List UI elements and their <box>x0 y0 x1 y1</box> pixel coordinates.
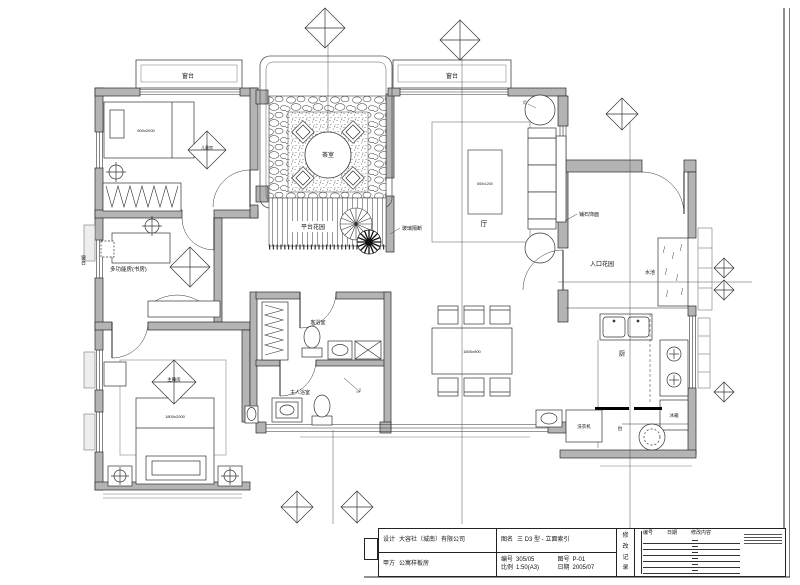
desk <box>112 233 170 263</box>
water-feature: 水池 <box>645 238 688 306</box>
kitchen: 厨 冰箱 洗衣机 台 <box>536 308 692 466</box>
revision-row <box>643 568 740 574</box>
chair <box>101 241 114 257</box>
living-room: 600x1200 厅 灯 <box>432 95 566 263</box>
fridge-label: 冰箱 <box>670 412 679 419</box>
stove <box>660 340 688 396</box>
glass-note-label: 玻璃隔断 <box>402 225 422 232</box>
elevation-marker-master-room: 主睡房 <box>152 360 196 404</box>
title-block-revisions: 编号 日期 修改内容 <box>635 529 785 576</box>
drawing-sheet: 窗台 窗台 窗台 茶室 平台花园 <box>0 0 800 585</box>
drawing-name: 三 D3 型 - 立面索引 <box>517 537 569 544</box>
floor-plan-svg: 窗台 窗台 窗台 茶室 平台花园 <box>0 0 800 585</box>
elevation-marker-icon <box>714 280 734 300</box>
scale-label: 比例 <box>501 565 513 572</box>
chair <box>464 378 484 396</box>
chair <box>490 306 510 324</box>
toilet-icon <box>302 326 322 357</box>
revision-note-block <box>744 532 782 546</box>
designer-value: 大容社（城南）有限公司 <box>399 537 465 544</box>
shrub-icon <box>357 230 381 254</box>
elevation-marker-icon <box>281 491 313 523</box>
revision-header: 日期 <box>667 531 677 537</box>
revision-header: 修改内容 <box>691 531 711 537</box>
elevation-marker-icon <box>714 382 734 402</box>
toilet-icon <box>312 395 332 425</box>
water-pool-label: 水池 <box>645 269 655 276</box>
lamp-label: 灯 <box>523 99 527 105</box>
drawing-name-label: 图名 <box>501 537 513 544</box>
master-bedroom: 1800x2000 <box>104 322 258 486</box>
lamp-icon <box>106 162 126 182</box>
client-label: 甲方 <box>383 561 395 568</box>
paving-note-label: 铺石饰面 <box>579 211 599 218</box>
dining-table-size: 1800x900 <box>463 349 481 354</box>
child-room-label: 儿童房 <box>201 144 213 150</box>
elevation-marker-icon <box>341 491 373 523</box>
cabinet <box>104 362 126 386</box>
side-char: 修 <box>622 533 628 540</box>
elevation-marker-icon <box>606 98 638 130</box>
study-label: 多功能房(书房) <box>110 265 147 273</box>
children-bedroom: 900x2000 <box>103 102 250 211</box>
client-value: 公寓样板房 <box>399 561 429 568</box>
side-table <box>525 95 555 125</box>
side-char: 录 <box>622 565 628 572</box>
job-no: 305/05 <box>516 557 534 564</box>
title-block-tick <box>364 538 378 560</box>
closet <box>262 302 288 360</box>
date-label: 日期 <box>558 565 570 572</box>
side-window-label: 窗台 <box>80 254 86 266</box>
side-table <box>525 233 555 263</box>
washing-machine: 洗衣机 <box>566 410 602 442</box>
double-sink <box>600 314 652 340</box>
guest-bathroom: 客浴室 <box>262 292 381 360</box>
coffee-table-size: 600x1200 <box>477 182 492 186</box>
living-hall-label: 厅 <box>481 220 488 228</box>
deck-label: 平台花园 <box>301 223 325 231</box>
pillow <box>110 110 124 138</box>
chair <box>490 378 510 396</box>
dining-area: 1800x900 <box>432 306 512 396</box>
date-value: 2005/07 <box>573 565 595 572</box>
sheet-no: P-01 <box>573 557 586 564</box>
guest-bath-label: 客浴室 <box>310 319 325 326</box>
small-fixture <box>536 410 562 427</box>
chair <box>464 306 484 324</box>
entry-garden-label: 入口花园 <box>590 260 614 268</box>
elevation-marker-icon <box>305 8 345 48</box>
console-table <box>148 301 220 317</box>
title-block-side-column: 修 改 记 录 <box>617 529 635 576</box>
chair <box>438 378 458 396</box>
washing-machine-label: 洗衣机 <box>577 423 591 430</box>
side-char: 改 <box>622 544 628 551</box>
bay-window-left: 窗台 <box>136 60 242 88</box>
outer-planters <box>698 228 712 388</box>
title-block-drawing-info: 图名 三 D3 型 - 立面索引 编号305/05 比例1:50(A3) 图号P… <box>497 529 617 576</box>
elevation-marker-icon <box>714 258 734 278</box>
job-no-label: 编号 <box>501 557 513 564</box>
elevation-marker-icon <box>440 20 480 60</box>
scale-value: 1:50(A3) <box>516 565 539 572</box>
revision-header: 编号 <box>643 531 653 537</box>
side-char: 记 <box>622 555 628 562</box>
bay-left-label: 窗台 <box>182 72 194 80</box>
single-bed-size: 900x2000 <box>137 128 155 133</box>
counter-label: 台 <box>617 425 622 432</box>
chair <box>438 306 458 324</box>
sheet-no-label: 图号 <box>558 557 570 564</box>
master-room-label: 主睡房 <box>167 376 181 383</box>
title-block: 设计 大容社（城南）有限公司 甲方 公寓样板房 图名 三 D3 型 - 立面索引… <box>378 528 786 577</box>
designer-label: 设计 <box>383 537 395 544</box>
master-bathroom: 主人浴室 <box>272 360 360 425</box>
bay-window-right: 窗台 <box>393 60 511 88</box>
tea-area-label: 茶室 <box>322 151 334 159</box>
double-bed-size: 1800x2000 <box>165 414 186 419</box>
kitchen-label: 厨 <box>619 351 625 358</box>
bay-right-label: 窗台 <box>446 72 458 80</box>
fridge: 冰箱 <box>660 400 688 430</box>
title-block-company: 设计 大容社（城南）有限公司 甲方 公寓样板房 <box>379 529 497 576</box>
round-washer <box>639 424 665 450</box>
elevation-marker-icon <box>170 247 210 287</box>
sofa <box>528 128 566 229</box>
